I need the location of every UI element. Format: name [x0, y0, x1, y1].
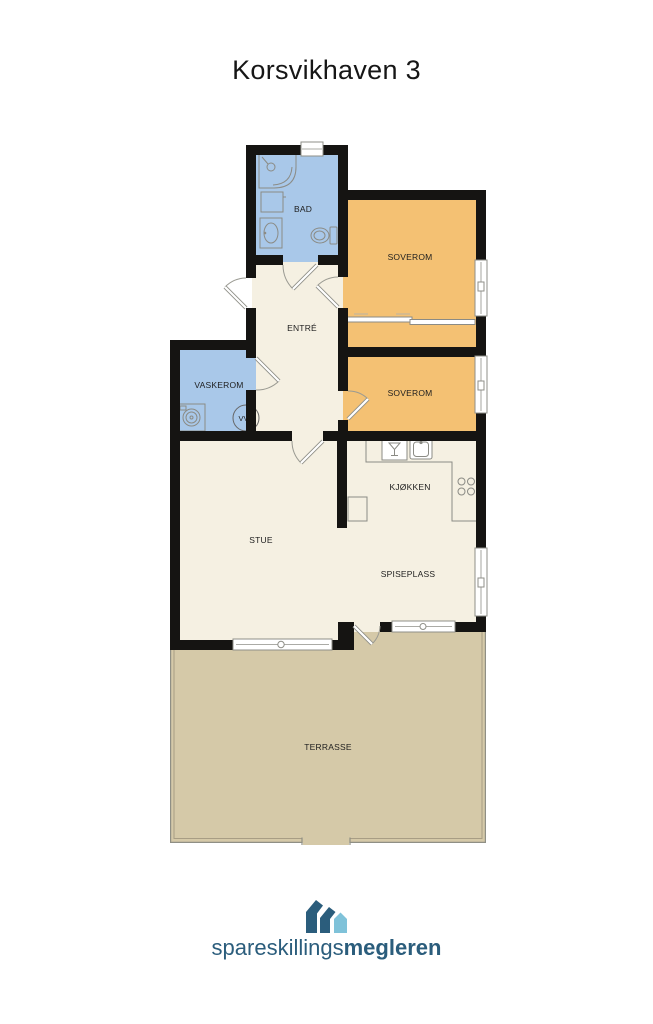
label-soverom-2: SOVEROM	[388, 388, 433, 398]
brand-name: spareskillingsmegleren	[212, 937, 442, 959]
stue-sliding-window	[233, 639, 332, 650]
soverom1-window	[475, 260, 487, 316]
label-vaskerom: VASKEROM	[194, 380, 243, 390]
logo-shape-mid	[320, 907, 336, 933]
bad-window	[301, 142, 323, 156]
brand-name-bold: megleren	[344, 935, 442, 960]
logo-shape-house	[334, 913, 347, 934]
entrance-door	[225, 278, 246, 308]
label-spiseplass: SPISEPLASS	[381, 569, 436, 579]
label-entre: ENTRÉ	[287, 323, 317, 333]
label-kjokken: KJØKKEN	[389, 482, 430, 492]
brand-logo: spareskillingsmegleren	[0, 897, 653, 959]
label-soverom-1: SOVEROM	[388, 252, 433, 262]
brand-house-icon	[304, 897, 350, 933]
label-stue: STUE	[249, 535, 273, 545]
terrace-floor	[170, 630, 486, 843]
label-terrasse: TERRASSE	[304, 742, 352, 752]
floorplan-page: Korsvikhaven 3	[0, 0, 653, 1024]
spiseplass-bottom-window	[392, 621, 455, 632]
label-bad: BAD	[294, 204, 312, 214]
brand-name-regular: spareskillings	[212, 935, 344, 960]
soverom2-window	[475, 356, 487, 413]
floorplan-drawing: VVB	[0, 0, 653, 1024]
spiseplass-side-window	[475, 548, 487, 616]
soverom1-floor	[343, 195, 482, 352]
vaskerom-floor	[175, 345, 256, 437]
